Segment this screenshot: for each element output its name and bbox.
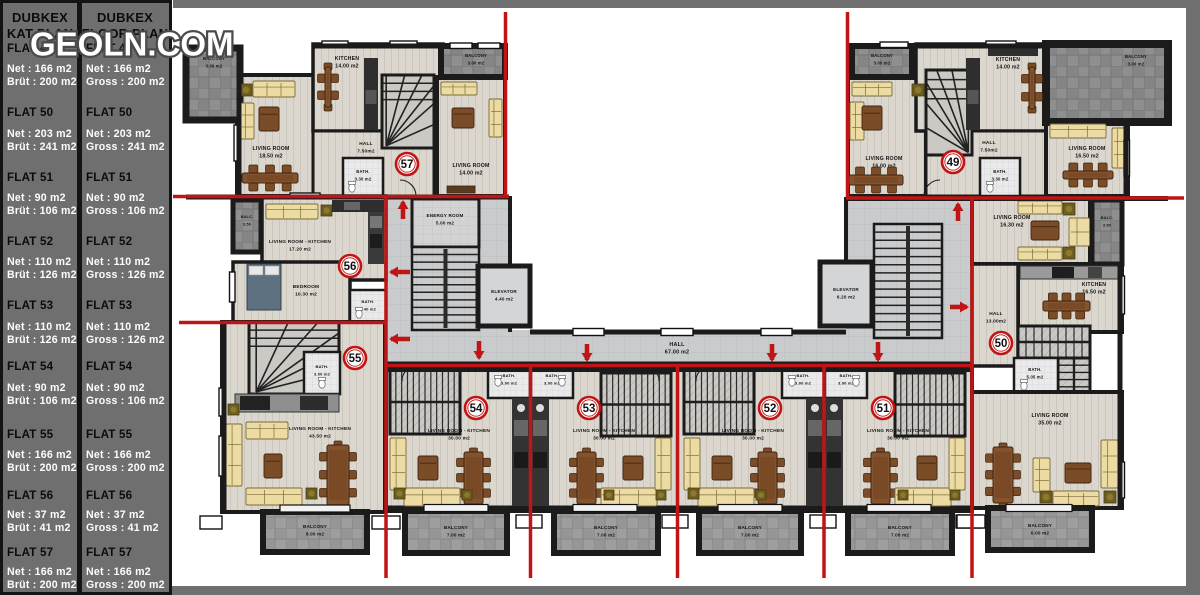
svg-text:LIVING ROOM: LIVING ROOM — [865, 156, 902, 162]
svg-text:3.00 m2: 3.00 m2 — [544, 381, 561, 386]
svg-text:30.00 m2: 30.00 m2 — [448, 436, 470, 442]
svg-text:KITCHEN: KITCHEN — [996, 57, 1021, 63]
svg-text:Net : 110 m2: Net : 110 m2 — [86, 321, 150, 333]
svg-text:Gross : 106 m2: Gross : 106 m2 — [86, 395, 165, 407]
svg-text:51: 51 — [877, 403, 890, 415]
svg-text:10.30 m2: 10.30 m2 — [295, 292, 317, 298]
svg-text:43.50 m2: 43.50 m2 — [309, 434, 331, 440]
svg-text:LIVING ROOM: LIVING ROOM — [252, 146, 289, 152]
svg-text:Brüt : 106 m2: Brüt : 106 m2 — [7, 205, 77, 217]
svg-text:Net : 90 m2: Net : 90 m2 — [7, 382, 66, 394]
svg-text:16.50 m2: 16.50 m2 — [1082, 290, 1106, 296]
svg-text:7.50m2: 7.50m2 — [980, 148, 998, 154]
svg-text:LIVING ROOM - KITCHEN: LIVING ROOM - KITCHEN — [289, 426, 351, 432]
svg-text:18.50 m2: 18.50 m2 — [259, 154, 283, 160]
svg-text:Net : 166 m2: Net : 166 m2 — [7, 63, 72, 75]
svg-text:Gross : 200 m2: Gross : 200 m2 — [86, 579, 165, 591]
svg-text:FLAT 57: FLAT 57 — [86, 546, 132, 559]
svg-text:Net : 90 m2: Net : 90 m2 — [86, 382, 145, 394]
svg-text:LIVING ROOM - KITCHEN: LIVING ROOM - KITCHEN — [573, 428, 635, 434]
svg-text:BALCONY: BALCONY — [1028, 523, 1052, 528]
svg-text:FLAT 55: FLAT 55 — [7, 428, 54, 441]
svg-text:HALL: HALL — [982, 140, 996, 146]
svg-text:16.30 m2: 16.30 m2 — [1000, 223, 1024, 229]
svg-text:Net : 110 m2: Net : 110 m2 — [7, 321, 71, 333]
svg-text:BALCONY: BALCONY — [444, 525, 468, 530]
svg-text:14.00 m2: 14.00 m2 — [996, 65, 1020, 71]
svg-text:FLAT 57: FLAT 57 — [7, 546, 53, 559]
svg-text:Brüt : 126 m2: Brüt : 126 m2 — [7, 269, 77, 281]
svg-text:FLAT 53: FLAT 53 — [7, 299, 54, 312]
svg-text:3.00 m2: 3.00 m2 — [206, 64, 223, 69]
svg-text:3.50: 3.50 — [1103, 224, 1111, 228]
svg-text:Brüt : 126 m2: Brüt : 126 m2 — [7, 334, 77, 346]
svg-text:52: 52 — [764, 403, 777, 415]
svg-text:Gross : 200 m2: Gross : 200 m2 — [86, 76, 165, 88]
svg-text:FLAT 52: FLAT 52 — [7, 235, 53, 248]
svg-text:BALC.: BALC. — [241, 215, 254, 219]
svg-text:BATH.: BATH. — [362, 299, 375, 304]
svg-text:FLAT 56: FLAT 56 — [7, 489, 54, 502]
svg-text:FLAT 50: FLAT 50 — [86, 106, 132, 119]
svg-text:35.00 m2: 35.00 m2 — [1038, 421, 1062, 427]
svg-text:13.00m2: 13.00m2 — [986, 319, 1006, 325]
svg-text:GEOLN.COM: GEOLN.COM — [30, 26, 234, 63]
svg-text:LIVING ROOM: LIVING ROOM — [1031, 413, 1068, 419]
svg-text:3.30 m2: 3.30 m2 — [355, 177, 372, 182]
svg-text:Net : 37 m2: Net : 37 m2 — [7, 509, 66, 521]
svg-text:Brüt : 200 m2: Brüt : 200 m2 — [7, 462, 77, 474]
svg-text:53: 53 — [583, 403, 596, 415]
svg-text:55: 55 — [349, 353, 362, 365]
svg-text:6.20 m2: 6.20 m2 — [837, 295, 856, 300]
svg-text:Brüt : 200 m2: Brüt : 200 m2 — [7, 76, 77, 88]
svg-text:57: 57 — [401, 159, 414, 171]
svg-text:7.00 m2: 7.00 m2 — [447, 533, 466, 538]
svg-text:BALCONY: BALCONY — [465, 53, 487, 58]
svg-text:BALC.: BALC. — [1101, 216, 1114, 220]
svg-text:BATH.: BATH. — [356, 169, 369, 174]
svg-text:Net : 37 m2: Net : 37 m2 — [86, 509, 145, 521]
svg-text:ENERGY ROOM: ENERGY ROOM — [426, 213, 463, 218]
svg-text:BALCONY: BALCONY — [594, 525, 618, 530]
svg-text:KITCHEN: KITCHEN — [1082, 282, 1107, 288]
svg-text:LIVING ROOM: LIVING ROOM — [993, 215, 1030, 221]
svg-text:HALL: HALL — [359, 141, 373, 147]
svg-text:49: 49 — [947, 157, 960, 169]
svg-text:FLAT 56: FLAT 56 — [86, 489, 133, 502]
svg-text:Gross : 126 m2: Gross : 126 m2 — [86, 269, 165, 281]
svg-text:FLAT 53: FLAT 53 — [86, 299, 133, 312]
svg-text:BATH.: BATH. — [993, 169, 1006, 174]
svg-text:50: 50 — [995, 338, 1008, 350]
svg-text:3.00 m2: 3.00 m2 — [314, 372, 331, 377]
svg-text:LIVING ROOM - KITCHEN: LIVING ROOM - KITCHEN — [269, 239, 331, 245]
svg-text:Net : 110 m2: Net : 110 m2 — [7, 256, 71, 268]
svg-text:Net : 90 m2: Net : 90 m2 — [7, 192, 66, 204]
svg-text:BALCONY: BALCONY — [1125, 54, 1147, 59]
svg-text:Net : 203 m2: Net : 203 m2 — [7, 128, 72, 140]
svg-text:3.30 m2: 3.30 m2 — [992, 177, 1009, 182]
svg-text:Net : 110 m2: Net : 110 m2 — [86, 256, 150, 268]
svg-text:BALCONY: BALCONY — [871, 53, 893, 58]
svg-text:Net : 166 m2: Net : 166 m2 — [7, 449, 72, 461]
svg-text:14.00 m2: 14.00 m2 — [335, 64, 359, 70]
svg-text:3.50: 3.50 — [243, 223, 251, 227]
svg-text:LIVING ROOM: LIVING ROOM — [1068, 146, 1105, 152]
svg-text:FLAT 51: FLAT 51 — [86, 171, 133, 184]
svg-text:ELEVATOR: ELEVATOR — [833, 287, 859, 292]
svg-text:BATH.: BATH. — [1028, 367, 1041, 372]
svg-text:Brüt : 241 m2: Brüt : 241 m2 — [7, 141, 77, 153]
svg-text:8.00 m2: 8.00 m2 — [306, 532, 325, 537]
svg-text:FLAT 50: FLAT 50 — [7, 106, 53, 119]
svg-text:DUBKEX: DUBKEX — [97, 10, 153, 25]
svg-text:3.00 m2: 3.00 m2 — [1128, 62, 1145, 67]
svg-text:FLAT 55: FLAT 55 — [86, 428, 133, 441]
svg-text:Gross : 241 m2: Gross : 241 m2 — [86, 141, 165, 153]
svg-text:5.00 m2: 5.00 m2 — [436, 221, 455, 226]
svg-text:Gross : 200 m2: Gross : 200 m2 — [86, 462, 165, 474]
svg-text:Gross : 41 m2: Gross : 41 m2 — [86, 522, 159, 534]
svg-text:FLAT 54: FLAT 54 — [86, 360, 133, 373]
svg-text:Brüt : 200 m2: Brüt : 200 m2 — [7, 579, 77, 591]
svg-text:14.00 m2: 14.00 m2 — [459, 171, 483, 177]
svg-text:7.00 m2: 7.00 m2 — [597, 533, 616, 538]
svg-text:5.05 m2: 5.05 m2 — [1027, 375, 1044, 380]
svg-text:Brüt : 106 m2: Brüt : 106 m2 — [7, 395, 77, 407]
svg-text:67.00 m2: 67.00 m2 — [665, 350, 689, 356]
svg-text:Net : 203 m2: Net : 203 m2 — [86, 128, 151, 140]
svg-text:FLAT 51: FLAT 51 — [7, 171, 54, 184]
svg-text:LIVING ROOM: LIVING ROOM — [452, 163, 489, 169]
svg-text:BATH.: BATH. — [503, 373, 516, 378]
svg-text:Net : 90 m2: Net : 90 m2 — [86, 192, 145, 204]
svg-text:16.50 m2: 16.50 m2 — [1075, 154, 1099, 160]
svg-text:FLAT 54: FLAT 54 — [7, 360, 54, 373]
svg-text:LIVING ROOM - KITCHEN: LIVING ROOM - KITCHEN — [428, 428, 490, 434]
svg-text:3.00 m2: 3.00 m2 — [874, 61, 891, 66]
svg-text:30.00 m2: 30.00 m2 — [593, 436, 615, 442]
svg-text:BATH.: BATH. — [546, 373, 559, 378]
svg-text:Brüt : 41 m2: Brüt : 41 m2 — [7, 522, 71, 534]
svg-text:56: 56 — [344, 261, 357, 273]
svg-text:7.50m2: 7.50m2 — [357, 149, 375, 155]
svg-text:ELEVATOR: ELEVATOR — [491, 289, 517, 294]
svg-text:BEDROOM: BEDROOM — [293, 284, 319, 290]
svg-text:3.00 m2: 3.00 m2 — [501, 381, 518, 386]
svg-text:HALL: HALL — [669, 342, 685, 348]
svg-text:Net : 166 m2: Net : 166 m2 — [86, 449, 151, 461]
svg-text:17.20 m2: 17.20 m2 — [289, 247, 311, 253]
svg-text:6.00 m2: 6.00 m2 — [1031, 531, 1050, 536]
svg-text:FLAT 52: FLAT 52 — [86, 235, 132, 248]
svg-text:BATH.: BATH. — [316, 364, 329, 369]
svg-text:BALCONY: BALCONY — [303, 524, 327, 529]
svg-text:Net : 166 m2: Net : 166 m2 — [86, 63, 151, 75]
svg-text:Net : 166 m2: Net : 166 m2 — [86, 566, 151, 578]
svg-text:Gross : 126 m2: Gross : 126 m2 — [86, 334, 165, 346]
svg-text:3.00 m2: 3.00 m2 — [468, 61, 485, 66]
svg-text:Net : 166 m2: Net : 166 m2 — [7, 566, 72, 578]
svg-text:4.40 m2: 4.40 m2 — [495, 297, 514, 302]
svg-text:KITCHEN: KITCHEN — [335, 56, 360, 62]
svg-text:Gross : 106 m2: Gross : 106 m2 — [86, 205, 165, 217]
svg-text:54: 54 — [470, 403, 483, 415]
svg-text:HALL: HALL — [989, 311, 1003, 317]
svg-text:DUBKEX: DUBKEX — [12, 10, 68, 25]
